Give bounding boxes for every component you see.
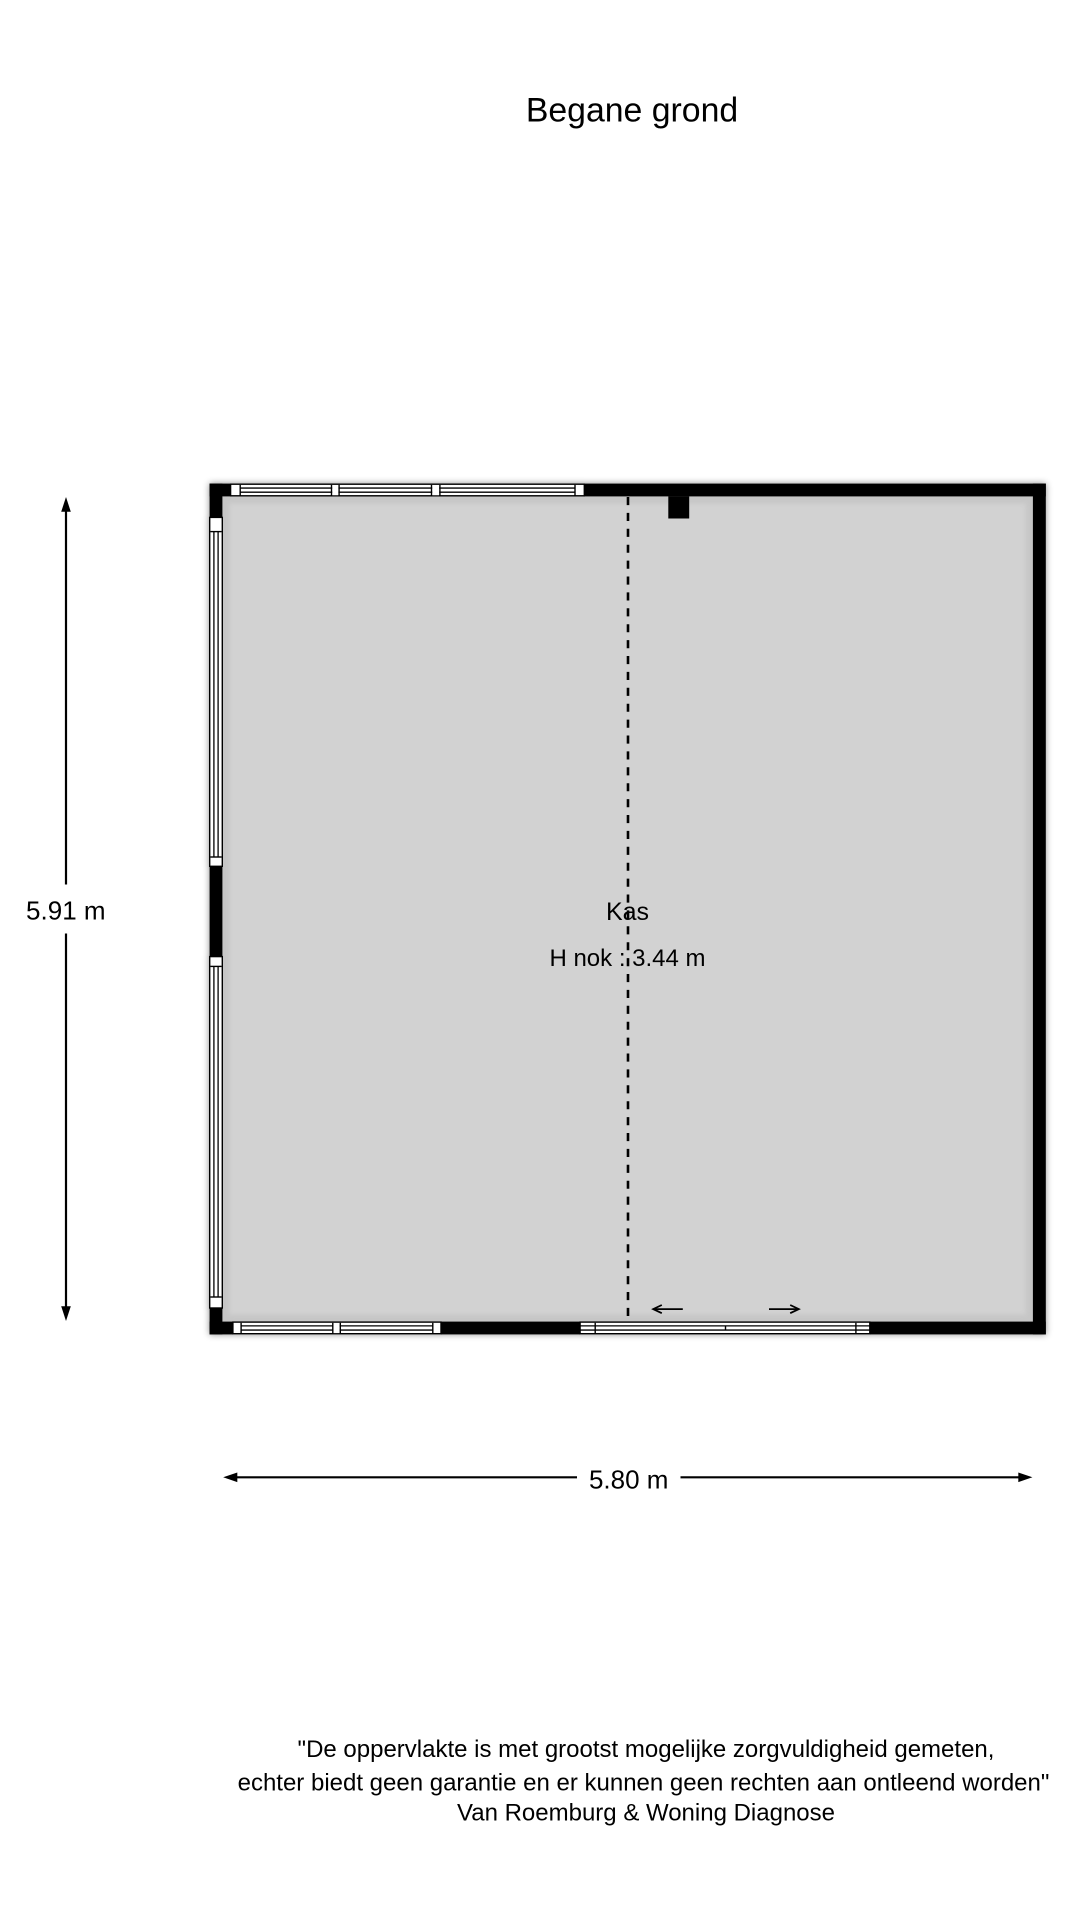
svg-text:"De oppervlakte is met grootst: "De oppervlakte is met grootst mogelijke… bbox=[298, 1736, 995, 1763]
svg-text:H nok : 3.44 m: H nok : 3.44 m bbox=[549, 945, 705, 972]
svg-text:5.91 m: 5.91 m bbox=[26, 895, 106, 925]
svg-text:5.80 m: 5.80 m bbox=[589, 1464, 669, 1494]
svg-text:Van Roemburg & Woning Diagnose: Van Roemburg & Woning Diagnose bbox=[457, 1800, 835, 1827]
svg-text:Kas: Kas bbox=[606, 898, 649, 926]
svg-text:Begane grond: Begane grond bbox=[526, 92, 738, 130]
svg-text:echter biedt geen garantie en: echter biedt geen garantie en er kunnen … bbox=[238, 1769, 1050, 1796]
